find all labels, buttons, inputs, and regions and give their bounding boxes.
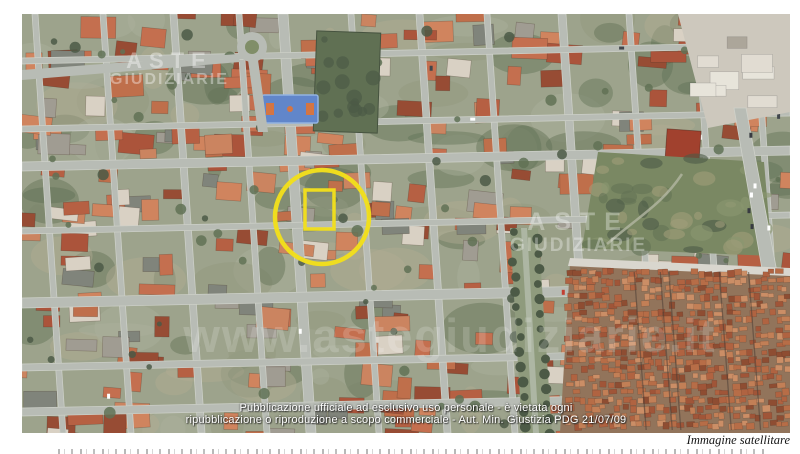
satellite-image: ASTE GIUDIZIARIE ASTE GIUDIZIARIE www.as… [22,14,790,433]
page: { "page": { "background": "#ffffff" }, "… [0,0,800,454]
publication-notice-line2: ripubblicazione o riproduzione a scopo c… [22,415,790,427]
publication-notice-line1: Pubblicazione ufficiale ad esclusivo uso… [22,403,790,415]
cropped-text-remnant [58,449,766,454]
satellite-map-svg [22,14,790,433]
image-type-caption: Immagine satellitare [687,433,790,448]
publication-notice: Pubblicazione ufficiale ad esclusivo uso… [22,403,790,426]
